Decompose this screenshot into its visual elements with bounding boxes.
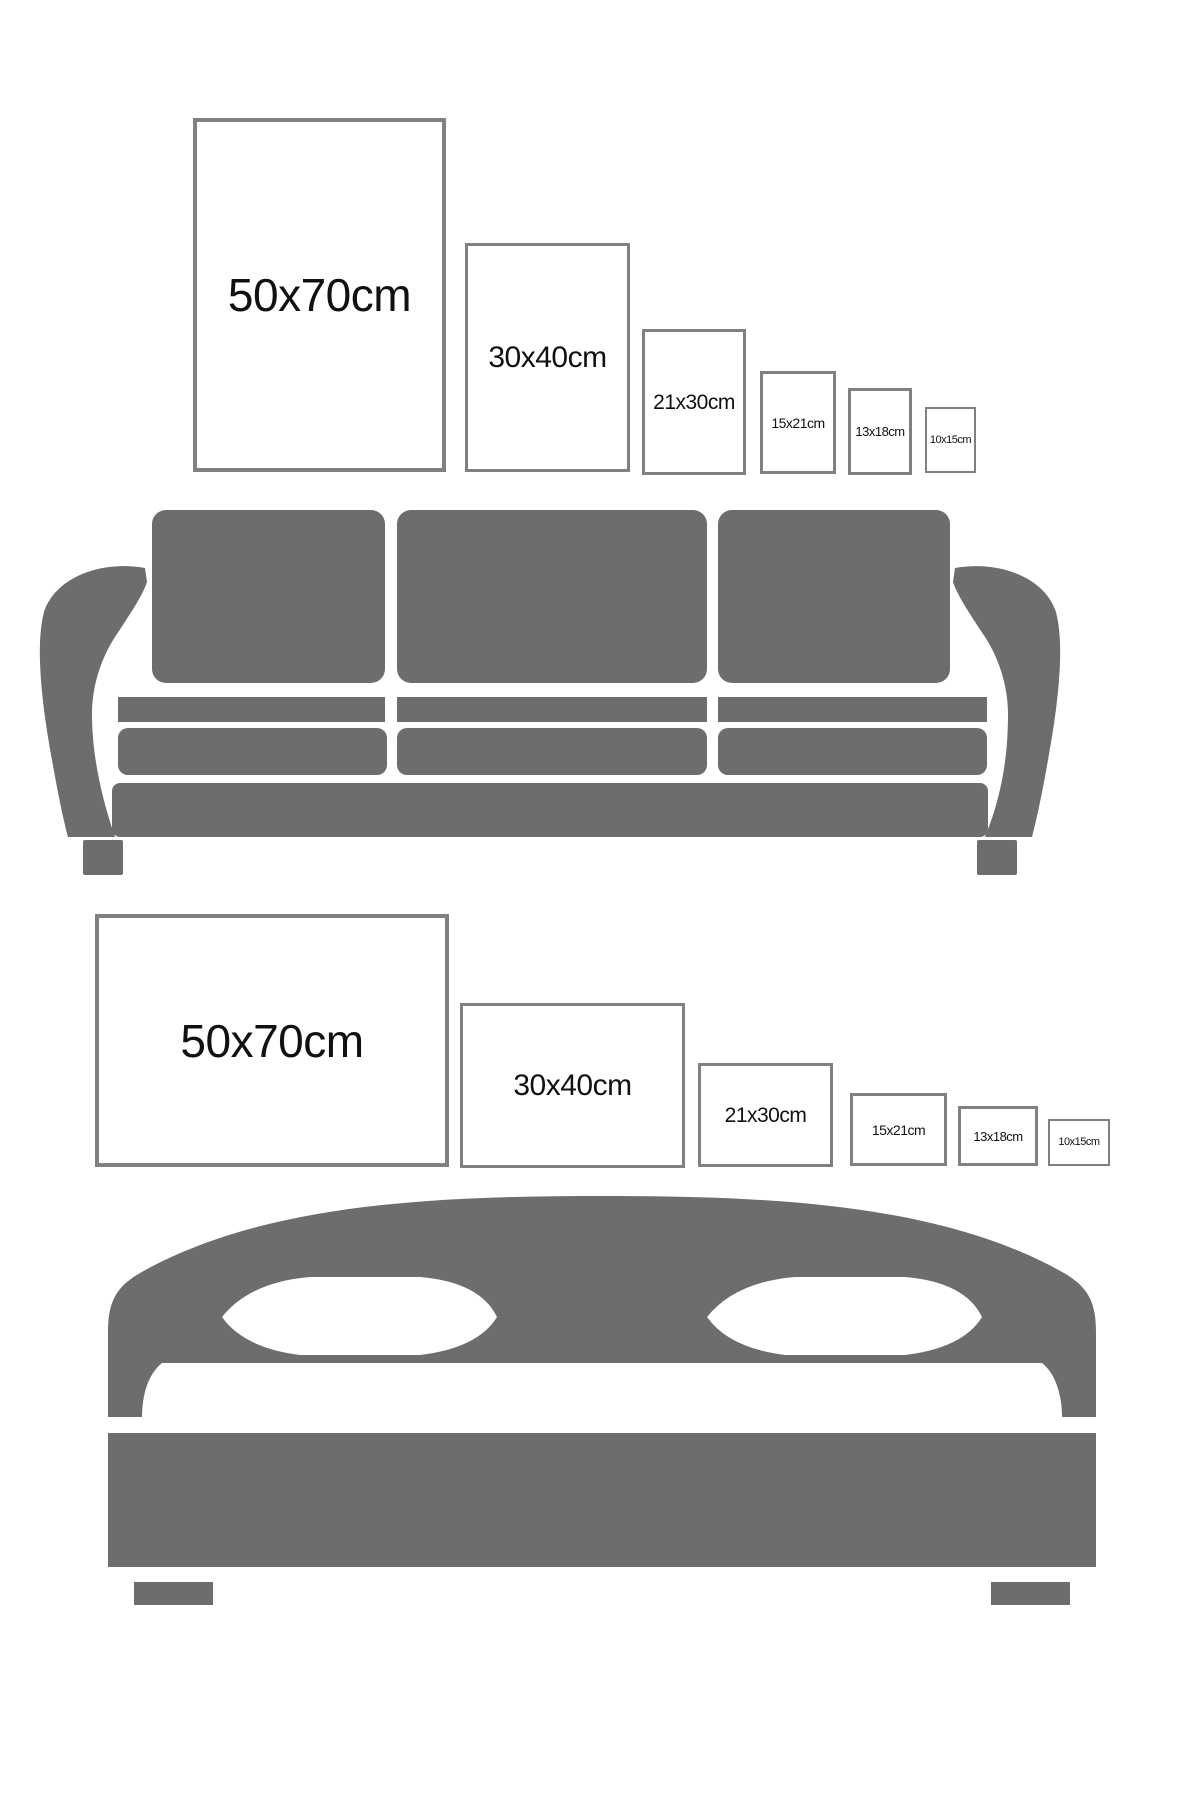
frame-21x30-landscape: 21x30cm — [698, 1063, 833, 1167]
frame-15x21-portrait: 15x21cm — [760, 371, 836, 474]
frame-size-label: 10x15cm — [930, 435, 971, 446]
sofa-deck — [718, 697, 987, 722]
bed-base — [108, 1433, 1096, 1567]
frame-size-label: 10x15cm — [1058, 1137, 1099, 1148]
sofa-back-cushion — [152, 510, 385, 683]
size-guide-canvas: 50x70cm 30x40cm 21x30cm 15x21cm 13x18cm … — [0, 0, 1200, 1800]
frame-size-label: 50x70cm — [180, 1018, 363, 1064]
frame-size-label: 13x18cm — [855, 425, 904, 438]
frame-size-label: 30x40cm — [513, 1071, 631, 1101]
frame-30x40-portrait: 30x40cm — [465, 243, 630, 472]
frame-50x70-landscape: 50x70cm — [95, 914, 449, 1167]
frame-50x70-portrait: 50x70cm — [193, 118, 446, 472]
frame-size-label: 15x21cm — [771, 416, 824, 430]
sofa-deck — [397, 697, 707, 722]
sofa-foot — [977, 840, 1017, 875]
frame-size-label: 21x30cm — [725, 1105, 807, 1126]
sofa-foot — [83, 840, 123, 875]
frame-size-label: 13x18cm — [973, 1130, 1022, 1143]
sofa-deck — [118, 697, 385, 722]
bed-silhouette — [108, 1196, 1096, 1605]
sofa-seat-cushion — [118, 728, 387, 775]
frame-size-label: 15x21cm — [872, 1123, 925, 1137]
bed-foot — [991, 1582, 1070, 1605]
sofa-base — [112, 783, 988, 837]
frame-size-label: 50x70cm — [228, 272, 411, 318]
bed-headboard — [108, 1196, 1096, 1417]
frame-15x21-landscape: 15x21cm — [850, 1093, 947, 1166]
sofa-seat-cushion — [397, 728, 707, 775]
bed-pillow-cutout — [222, 1277, 497, 1355]
sofa-seat-cushion — [718, 728, 987, 775]
bed-pillow-cutout — [707, 1277, 982, 1355]
frame-size-label: 21x30cm — [653, 392, 735, 413]
frame-size-label: 30x40cm — [488, 343, 606, 373]
bed-foot — [134, 1582, 213, 1605]
sofa-left-arm — [40, 566, 147, 837]
sofa-back-cushion — [718, 510, 950, 683]
sofa-back-cushion — [397, 510, 707, 683]
frame-30x40-landscape: 30x40cm — [460, 1003, 685, 1168]
frame-13x18-portrait: 13x18cm — [848, 388, 912, 475]
frame-10x15-landscape: 10x15cm — [1048, 1119, 1110, 1166]
sofa-right-arm — [953, 566, 1060, 837]
frame-21x30-portrait: 21x30cm — [642, 329, 746, 475]
frame-10x15-portrait: 10x15cm — [925, 407, 976, 473]
frame-13x18-landscape: 13x18cm — [958, 1106, 1038, 1166]
sofa-silhouette — [40, 510, 1060, 875]
